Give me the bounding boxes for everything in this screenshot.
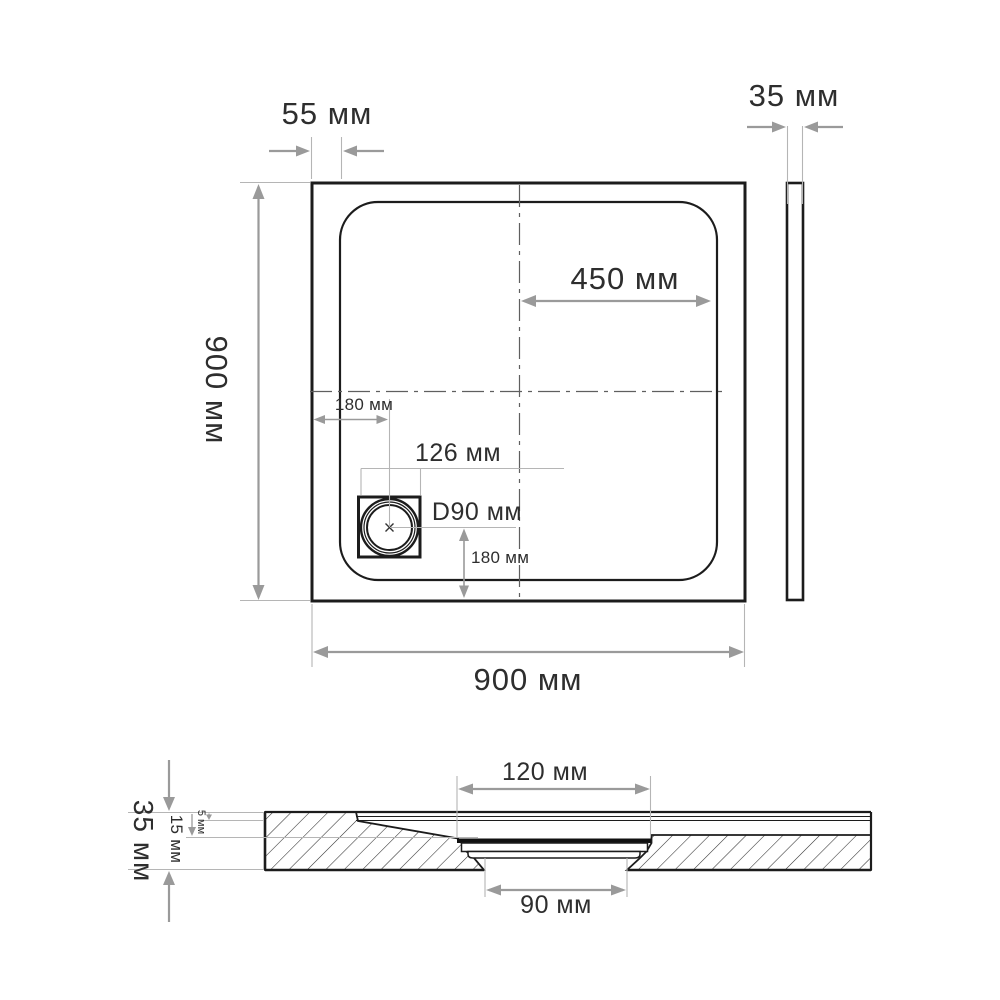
dim-drain-bottom-180: 180 мм bbox=[459, 529, 529, 599]
dim-label-rim: 55 мм bbox=[282, 96, 373, 131]
dim-label-width: 900 мм bbox=[474, 662, 583, 697]
dim-label-panel-thickness: 35 мм bbox=[749, 78, 840, 113]
dim-outlet-width-90: 90 мм bbox=[485, 858, 627, 919]
side-panel-view bbox=[787, 183, 803, 600]
dim-panel-thickness-35: 35 мм bbox=[747, 78, 843, 204]
top-view: 55 мм 35 мм 450 мм 900 мм bbox=[199, 78, 843, 697]
section-right-body bbox=[627, 835, 871, 870]
drain-section-view bbox=[457, 839, 651, 859]
dim-rim-55: 55 мм bbox=[269, 96, 384, 179]
dim-label-flange-width: 120 мм bbox=[502, 758, 588, 786]
dim-label-outlet-width: 90 мм bbox=[520, 891, 592, 919]
dim-label-total-height: 35 мм bbox=[128, 800, 159, 882]
dim-height-900: 900 мм bbox=[199, 183, 310, 601]
drain-body-upper bbox=[462, 843, 648, 852]
section-view: 35 мм 15 мм 5 мм 120 мм bbox=[128, 758, 871, 922]
dim-label-drain-bottom: 180 мм bbox=[471, 548, 529, 567]
dim-label-height: 900 мм bbox=[199, 336, 234, 445]
dim-total-height-35: 35 мм bbox=[128, 760, 263, 922]
dim-label-drain-plate: 126 мм bbox=[415, 439, 501, 467]
dim-label-half-width: 450 мм bbox=[571, 261, 680, 296]
dim-drain-plate-126: 126 мм bbox=[361, 439, 564, 495]
dim-floor-thickness-5: 5 мм bbox=[195, 810, 264, 834]
dim-label-floor-thickness: 5 мм bbox=[195, 810, 207, 834]
shower-tray-drawing: 55 мм 35 мм 450 мм 900 мм bbox=[0, 0, 1000, 1000]
dim-half-width-450: 450 мм bbox=[521, 261, 711, 307]
dim-label-drain-diameter: D90 мм bbox=[432, 498, 522, 526]
technical-drawing-canvas: 55 мм 35 мм 450 мм 900 мм bbox=[0, 0, 1000, 1000]
drain-body-lower bbox=[468, 852, 640, 859]
dim-label-inner-depth: 15 мм bbox=[167, 815, 186, 864]
dim-flange-width-120: 120 мм bbox=[457, 758, 651, 837]
dim-width-900: 900 мм bbox=[312, 604, 745, 697]
dim-label-drain-left: 180 мм bbox=[335, 395, 393, 414]
